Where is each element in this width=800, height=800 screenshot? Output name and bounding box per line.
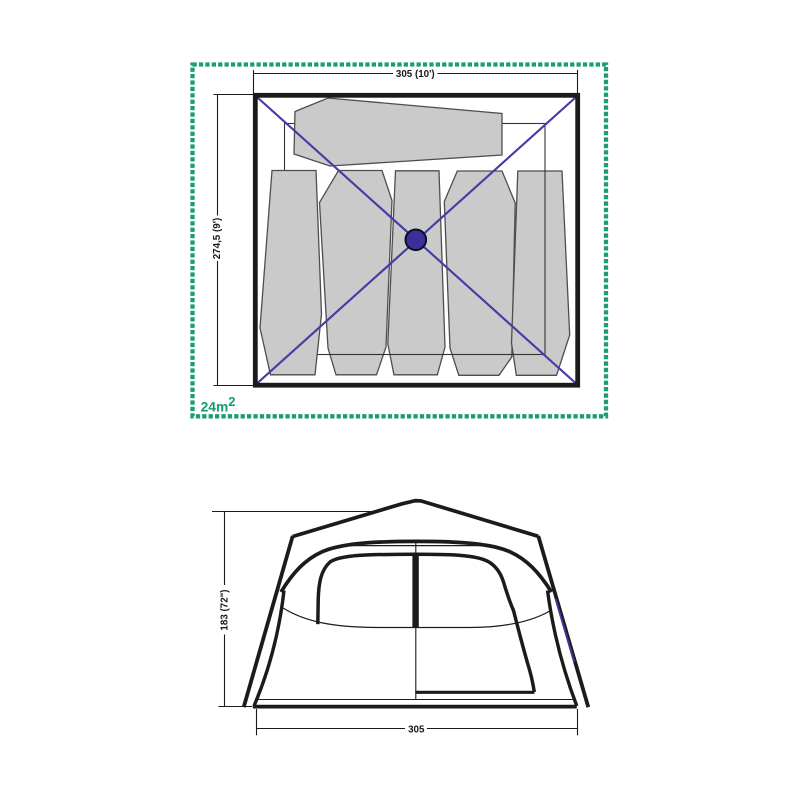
svg-text:305: 305	[408, 724, 425, 735]
svg-text:274,5 (9'): 274,5 (9')	[212, 218, 223, 260]
svg-text:183 (72"): 183 (72")	[219, 589, 230, 630]
svg-text:305 (10'): 305 (10')	[396, 69, 435, 80]
